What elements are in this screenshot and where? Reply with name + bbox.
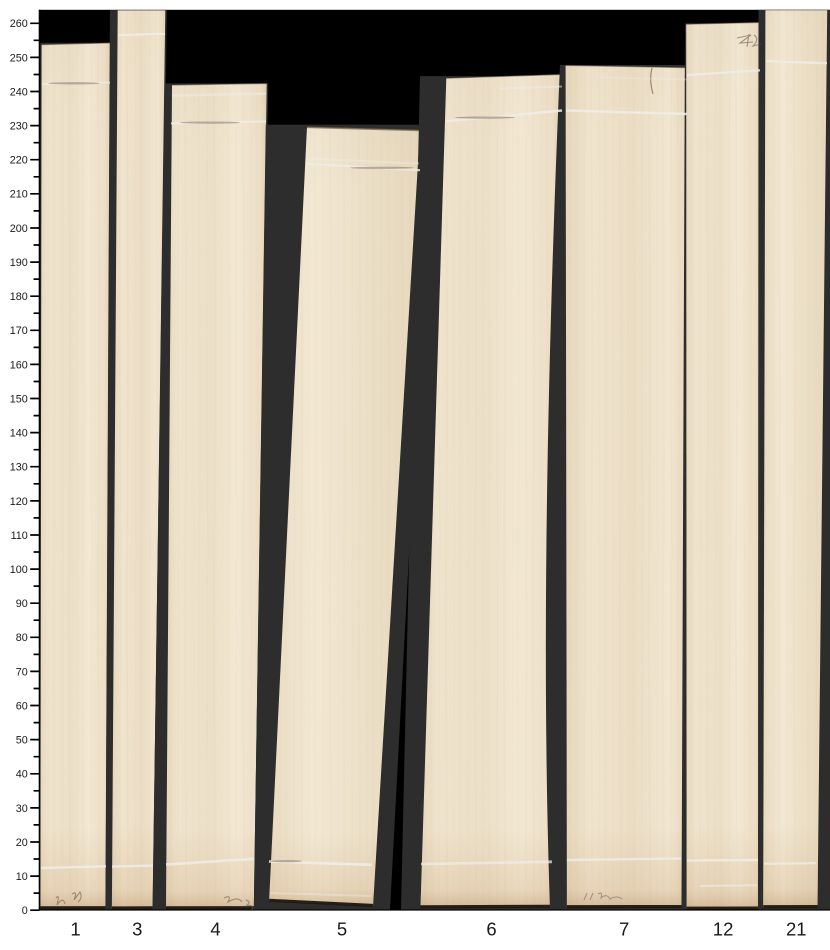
svg-text:12: 12 [713, 919, 734, 940]
svg-text:140: 140 [10, 428, 28, 440]
svg-text:190: 190 [10, 257, 28, 269]
svg-text:100: 100 [10, 564, 28, 576]
svg-text:220: 220 [10, 155, 28, 167]
svg-text:21: 21 [786, 919, 807, 940]
svg-text:210: 210 [10, 189, 28, 201]
svg-text:30: 30 [16, 803, 28, 815]
svg-text:130: 130 [10, 462, 28, 474]
svg-text:260: 260 [10, 18, 28, 30]
svg-text:40: 40 [16, 769, 28, 781]
svg-text:3: 3 [132, 919, 142, 940]
svg-text:80: 80 [16, 632, 28, 644]
svg-text:0: 0 [22, 905, 28, 917]
svg-text:150: 150 [10, 393, 28, 405]
svg-text:250: 250 [10, 52, 28, 64]
svg-text:50: 50 [16, 735, 28, 747]
svg-text:110: 110 [11, 530, 28, 542]
svg-text:1: 1 [70, 919, 80, 940]
svg-text:200: 200 [10, 223, 28, 235]
svg-text:170: 170 [10, 325, 28, 337]
svg-text:230: 230 [10, 121, 28, 133]
svg-text:20: 20 [16, 837, 28, 849]
svg-text:180: 180 [10, 291, 28, 303]
svg-text:160: 160 [10, 359, 28, 371]
svg-text:120: 120 [10, 496, 28, 508]
svg-text:5: 5 [337, 919, 347, 940]
svg-text:90: 90 [16, 598, 28, 610]
svg-text:10: 10 [16, 871, 28, 883]
svg-text:60: 60 [16, 700, 28, 712]
svg-text:7: 7 [619, 919, 629, 940]
svg-text:4: 4 [210, 919, 220, 940]
svg-text:240: 240 [10, 86, 28, 98]
svg-text:6: 6 [486, 919, 496, 940]
svg-text:70: 70 [16, 666, 28, 678]
